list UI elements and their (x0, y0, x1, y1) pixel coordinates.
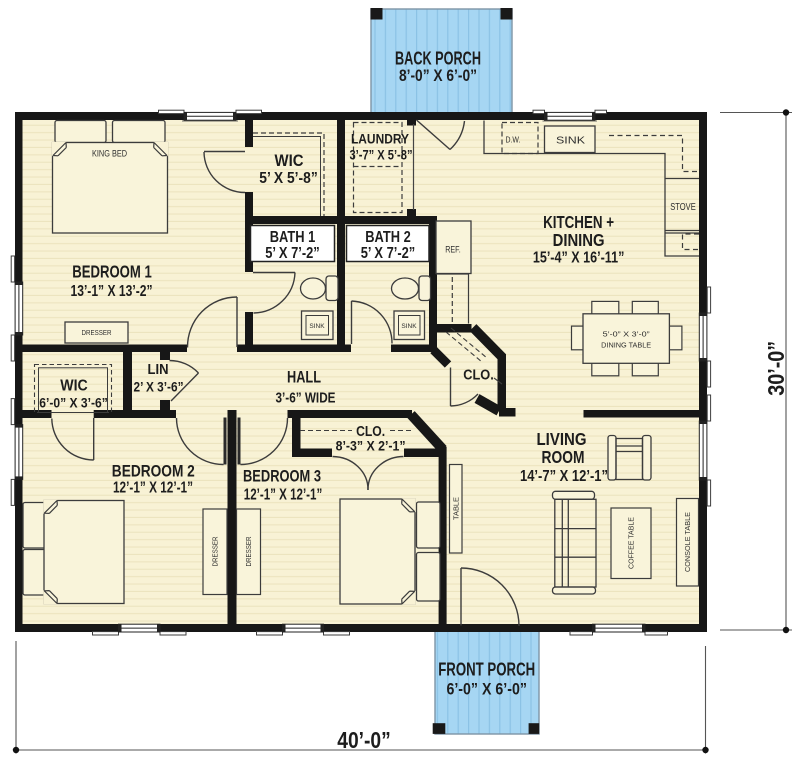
svg-text:40’-0”: 40’-0” (337, 727, 391, 753)
svg-text:TABLE: TABLE (451, 497, 460, 520)
svg-text:BEDROOM 2: BEDROOM 2 (112, 462, 195, 481)
svg-text:KITCHEN +: KITCHEN + (543, 212, 614, 232)
svg-text:14’-7” X 12’-1”: 14’-7” X 12’-1” (520, 468, 608, 485)
svg-text:WIC: WIC (275, 151, 304, 170)
svg-text:CONSOLE TABLE: CONSOLE TABLE (685, 512, 692, 572)
svg-text:HALL: HALL (287, 368, 321, 387)
svg-text:DRESSER: DRESSER (82, 328, 112, 337)
svg-text:3’-7” X 5’-8”: 3’-7” X 5’-8” (350, 148, 413, 163)
svg-text:5’ X 5’-8”: 5’ X 5’-8” (259, 170, 318, 187)
svg-text:DINING: DINING (553, 230, 605, 250)
svg-text:BATH 2: BATH 2 (365, 229, 411, 246)
svg-text:15’-4” X 16’-11”: 15’-4” X 16’-11” (533, 250, 625, 267)
svg-text:13’-1” X 13’-2”: 13’-1” X 13’-2” (71, 283, 153, 300)
svg-text:6’-0” X 6’-0”: 6’-0” X 6’-0” (446, 680, 527, 699)
svg-text:SINK: SINK (556, 135, 585, 147)
svg-text:FRONT PORCH: FRONT PORCH (438, 659, 535, 680)
svg-text:LIVING: LIVING (537, 429, 587, 449)
svg-text:5’ X 7’-2”: 5’ X 7’-2” (265, 245, 320, 262)
svg-text:12’-1” X 12’-1”: 12’-1” X 12’-1” (113, 480, 193, 497)
svg-text:6’-0” X 3’-6”: 6’-0” X 3’-6” (39, 395, 108, 411)
svg-text:5’-0” X 3’-0”: 5’-0” X 3’-0” (603, 332, 651, 339)
svg-text:2’ X 3’-6”: 2’ X 3’-6” (134, 380, 184, 395)
svg-text:COFFEE TABLE: COFFEE TABLE (627, 517, 636, 569)
svg-text:BATH 1: BATH 1 (270, 229, 316, 246)
svg-text:DRESSER: DRESSER (211, 536, 220, 566)
svg-text:KING BED: KING BED (92, 148, 127, 158)
svg-text:30’-0”: 30’-0” (763, 341, 789, 396)
svg-text:8’-3” X 2’-1”: 8’-3” X 2’-1” (336, 438, 406, 454)
svg-text:12’-1” X 12’-1”: 12’-1” X 12’-1” (244, 487, 323, 504)
svg-text:BEDROOM 1: BEDROOM 1 (72, 262, 152, 282)
svg-text:ROOM: ROOM (542, 447, 585, 467)
svg-text:LIN: LIN (148, 362, 169, 378)
svg-text:STOVE: STOVE (670, 202, 696, 213)
svg-text:D.W.: D.W. (506, 135, 521, 145)
svg-text:SINK: SINK (401, 323, 417, 330)
svg-text:SINK: SINK (309, 323, 325, 330)
svg-text:5’ X 7’-2”: 5’ X 7’-2” (361, 245, 416, 262)
svg-text:WIC: WIC (60, 378, 88, 395)
svg-text:REF.: REF. (445, 245, 461, 255)
svg-text:BEDROOM 3: BEDROOM 3 (243, 467, 321, 486)
svg-text:DRESSER: DRESSER (244, 536, 253, 566)
svg-text:3’-6” WIDE: 3’-6” WIDE (276, 390, 336, 407)
svg-text:DINING TABLE: DINING TABLE (601, 343, 651, 350)
svg-text:8’-0” X 6’-0”: 8’-0” X 6’-0” (399, 66, 477, 85)
svg-text:LAUNDRY: LAUNDRY (351, 132, 409, 147)
svg-text:CLO.: CLO. (463, 368, 494, 384)
